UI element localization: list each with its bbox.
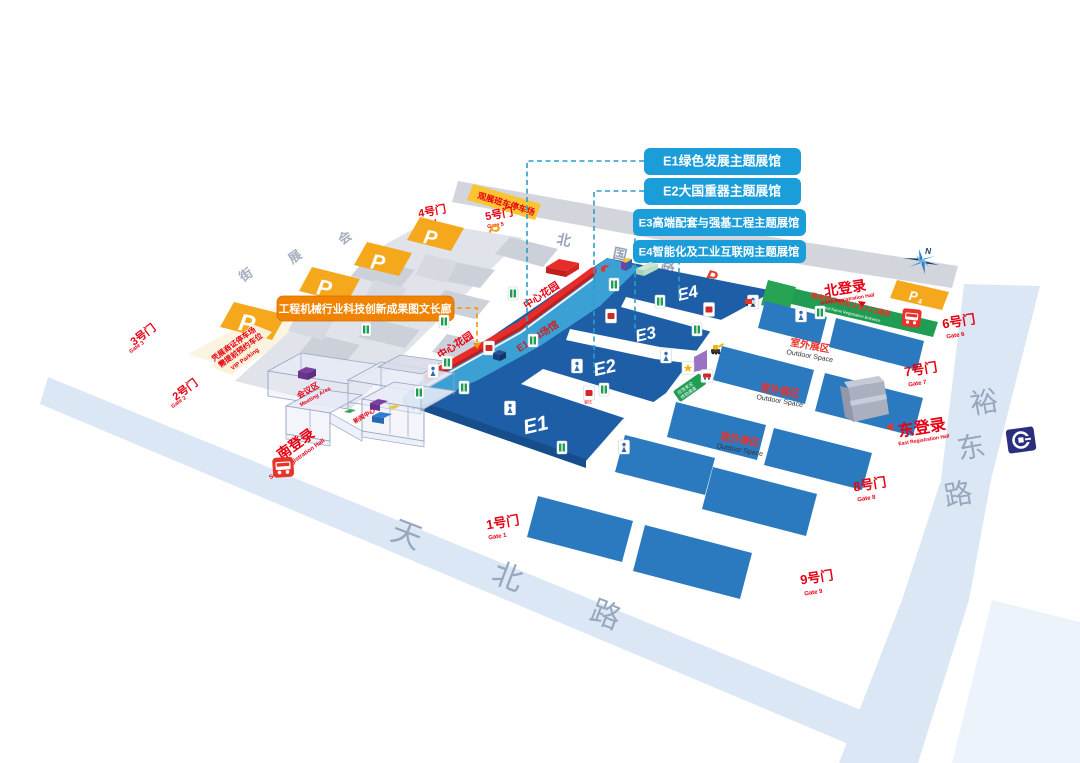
- svg-text:E1绿色发展主题展馆: E1绿色发展主题展馆: [663, 154, 781, 169]
- svg-text:路: 路: [942, 477, 975, 512]
- svg-text:E2大国重器主题展馆: E2大国重器主题展馆: [663, 184, 781, 199]
- svg-text:N: N: [925, 246, 932, 256]
- svg-text:工程机械行业科技创新成果图文长廊: 工程机械行业科技创新成果图文长廊: [279, 302, 452, 316]
- svg-text:裕: 裕: [968, 385, 1001, 420]
- svg-text:餐饮: 餐饮: [584, 399, 592, 405]
- svg-text:E4智能化及工业互联网主题展馆: E4智能化及工业互联网主题展馆: [639, 245, 800, 259]
- svg-text:东: 东: [955, 430, 988, 465]
- svg-text:E3高端配套与强基工程主题展馆: E3高端配套与强基工程主题展馆: [639, 216, 800, 230]
